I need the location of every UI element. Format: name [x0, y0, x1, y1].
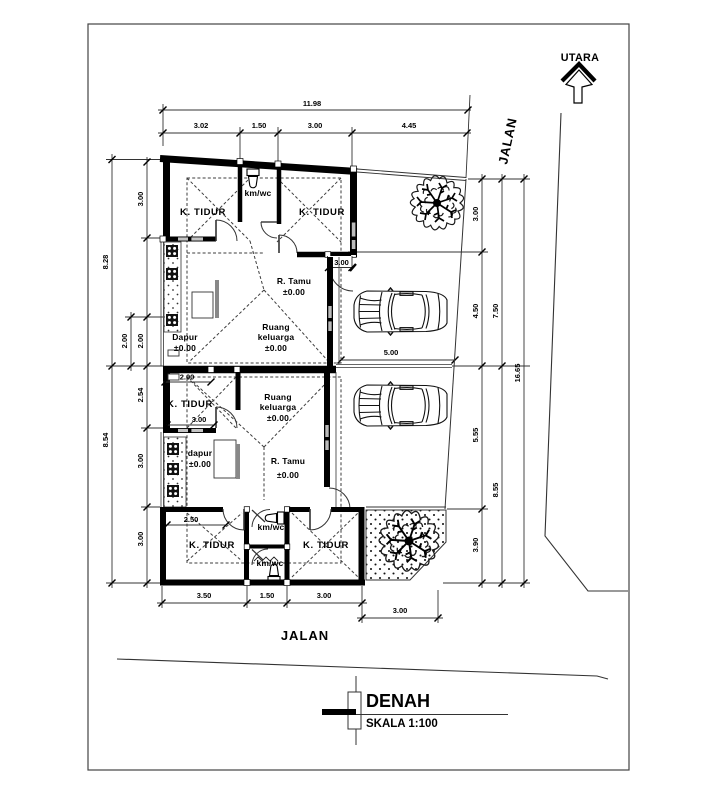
svg-text:K. TIDUR: K. TIDUR [180, 207, 226, 218]
svg-text:JALAN: JALAN [281, 628, 329, 643]
svg-text:3.00: 3.00 [308, 121, 323, 130]
svg-text:±0.00: ±0.00 [283, 287, 305, 297]
svg-text:±0.00: ±0.00 [267, 413, 289, 423]
svg-text:3.00: 3.00 [471, 207, 480, 222]
svg-text:3.00: 3.00 [393, 606, 408, 615]
svg-text:K. TIDUR: K. TIDUR [299, 207, 345, 218]
svg-text:R. Tamu: R. Tamu [271, 456, 305, 466]
svg-text:km/wc: km/wc [258, 522, 285, 532]
svg-text:7.50: 7.50 [491, 304, 500, 319]
svg-text:km/wc: km/wc [245, 188, 272, 198]
svg-text:8.55: 8.55 [491, 483, 500, 498]
svg-text:3.00: 3.00 [136, 532, 145, 547]
svg-text:11.98: 11.98 [303, 99, 321, 108]
svg-text:5.00: 5.00 [384, 348, 399, 357]
svg-text:3.00: 3.00 [136, 192, 145, 207]
svg-text:3.00: 3.00 [334, 258, 349, 267]
svg-text:±0.00: ±0.00 [189, 459, 211, 469]
svg-text:2.54: 2.54 [136, 387, 145, 402]
svg-text:Dapur: Dapur [172, 332, 198, 342]
svg-text:2.00: 2.00 [120, 334, 129, 349]
svg-text:2.00: 2.00 [136, 334, 145, 349]
svg-text:dapur: dapur [188, 448, 213, 458]
svg-text:K. TIDUR: K. TIDUR [303, 540, 349, 551]
svg-text:R. Tamu: R. Tamu [277, 276, 311, 286]
svg-text:1.50: 1.50 [252, 121, 267, 130]
svg-text:keluarga: keluarga [260, 402, 297, 412]
svg-text:2.00: 2.00 [180, 373, 195, 382]
svg-text:K. TIDUR: K. TIDUR [189, 540, 235, 551]
svg-text:3.00: 3.00 [192, 415, 207, 424]
svg-text:±0.00: ±0.00 [174, 343, 196, 353]
svg-text:3.50: 3.50 [197, 591, 212, 600]
svg-text:K. TIDUR: K. TIDUR [167, 399, 213, 410]
svg-text:2.50: 2.50 [184, 515, 199, 524]
svg-text:8.28: 8.28 [101, 255, 110, 270]
svg-text:1.50: 1.50 [260, 591, 275, 600]
svg-text:Ruang: Ruang [264, 392, 291, 402]
svg-text:SKALA 1:100: SKALA 1:100 [366, 718, 438, 730]
svg-text:km/wc: km/wc [257, 558, 284, 568]
svg-text:8.54: 8.54 [101, 432, 110, 447]
svg-text:3.00: 3.00 [136, 454, 145, 469]
svg-text:5.55: 5.55 [471, 428, 480, 443]
svg-text:Ruang: Ruang [262, 322, 289, 332]
svg-text:DENAH: DENAH [366, 691, 430, 711]
svg-text:keluarga: keluarga [258, 332, 295, 342]
svg-text:±0.00: ±0.00 [277, 470, 299, 480]
svg-text:3.02: 3.02 [194, 121, 209, 130]
svg-text:4.50: 4.50 [471, 304, 480, 319]
svg-text:3.90: 3.90 [471, 538, 480, 553]
svg-text:16.65: 16.65 [513, 364, 522, 383]
svg-text:4.45: 4.45 [402, 121, 417, 130]
svg-text:3.00: 3.00 [317, 591, 332, 600]
svg-text:±0.00: ±0.00 [265, 343, 287, 353]
